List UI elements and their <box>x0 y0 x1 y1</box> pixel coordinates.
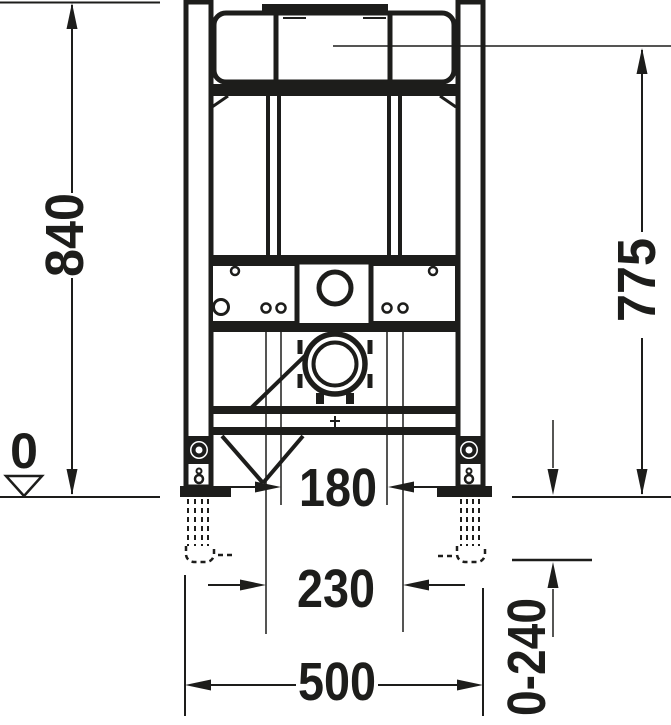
dimension-0-240: 0-240 <box>497 420 671 716</box>
arrowhead-left <box>185 680 211 691</box>
threaded-rod-hole <box>399 304 408 313</box>
outer-spacing-label: 230 <box>297 559 375 619</box>
frame-structure <box>180 2 492 634</box>
datum-triangle-icon <box>6 476 42 496</box>
floor-level-label: 0 <box>10 423 38 479</box>
top-crossbar <box>209 84 459 96</box>
total-height-label: 840 <box>35 193 95 277</box>
flush-pipe-opening <box>319 272 351 304</box>
v-brace <box>222 436 263 483</box>
cistern-tank <box>209 96 459 264</box>
foot-range-label: 0-240 <box>497 598 557 716</box>
cistern-lid-cap <box>276 13 390 82</box>
threaded-rod-hole <box>383 304 392 313</box>
foot-extension-dashed <box>186 499 233 562</box>
dimension-floor-level: 0 <box>6 423 42 496</box>
arrowhead-left <box>403 580 429 591</box>
left-rail <box>186 2 211 487</box>
threaded-rod-hole <box>277 304 286 313</box>
right-rail <box>458 2 483 487</box>
technical-drawing-canvas: 840 0 775 180 <box>0 0 671 725</box>
arrowhead-up <box>637 48 648 74</box>
mounting-plate <box>209 262 459 332</box>
lid-cap-top-edge <box>262 4 388 11</box>
fixing-hole <box>214 300 229 315</box>
arrowhead-down <box>548 469 559 495</box>
dimension-230: 230 <box>208 559 465 619</box>
threaded-rod-hole <box>262 304 271 313</box>
arrowhead-right <box>457 680 483 691</box>
drain-bend <box>249 334 370 410</box>
installation-frame-drawing: 840 0 775 180 <box>0 0 671 725</box>
connection-height-label: 775 <box>607 238 667 322</box>
inner-spacing-label: 180 <box>299 458 377 518</box>
bottom-crossbar <box>209 427 459 435</box>
fixing-hole <box>429 267 437 275</box>
arrowhead-up <box>67 3 78 29</box>
arrowhead-down <box>637 469 648 495</box>
arrowhead-right <box>240 580 266 591</box>
lower-crossbar <box>209 406 459 414</box>
left-foot <box>180 436 233 562</box>
arrowhead-up <box>548 562 559 588</box>
arrowhead-right <box>255 482 281 493</box>
arrowhead-down <box>67 469 78 495</box>
drain-connection-inner <box>314 343 357 386</box>
fixing-hole <box>231 267 239 275</box>
foot-extension-dashed <box>438 499 485 562</box>
frame-width-label: 500 <box>298 652 376 712</box>
arrowhead-left <box>388 482 414 493</box>
